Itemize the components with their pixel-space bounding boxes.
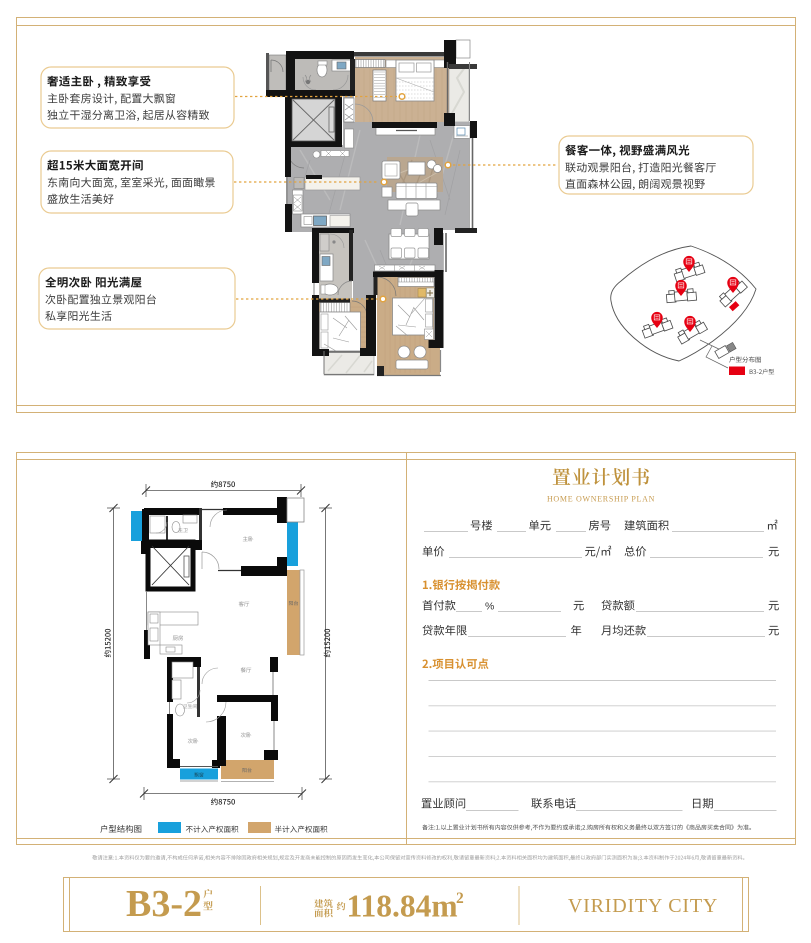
svg-text:118.84m: 118.84m xyxy=(347,889,458,924)
svg-text:B3-2: B3-2 xyxy=(126,883,202,925)
svg-text:%: % xyxy=(485,601,494,613)
svg-text:VIRIDITY CITY: VIRIDITY CITY xyxy=(568,895,718,917)
svg-text:HOME OWNERSHIP PLAN: HOME OWNERSHIP PLAN xyxy=(547,495,655,504)
svg-text:2: 2 xyxy=(456,890,464,907)
